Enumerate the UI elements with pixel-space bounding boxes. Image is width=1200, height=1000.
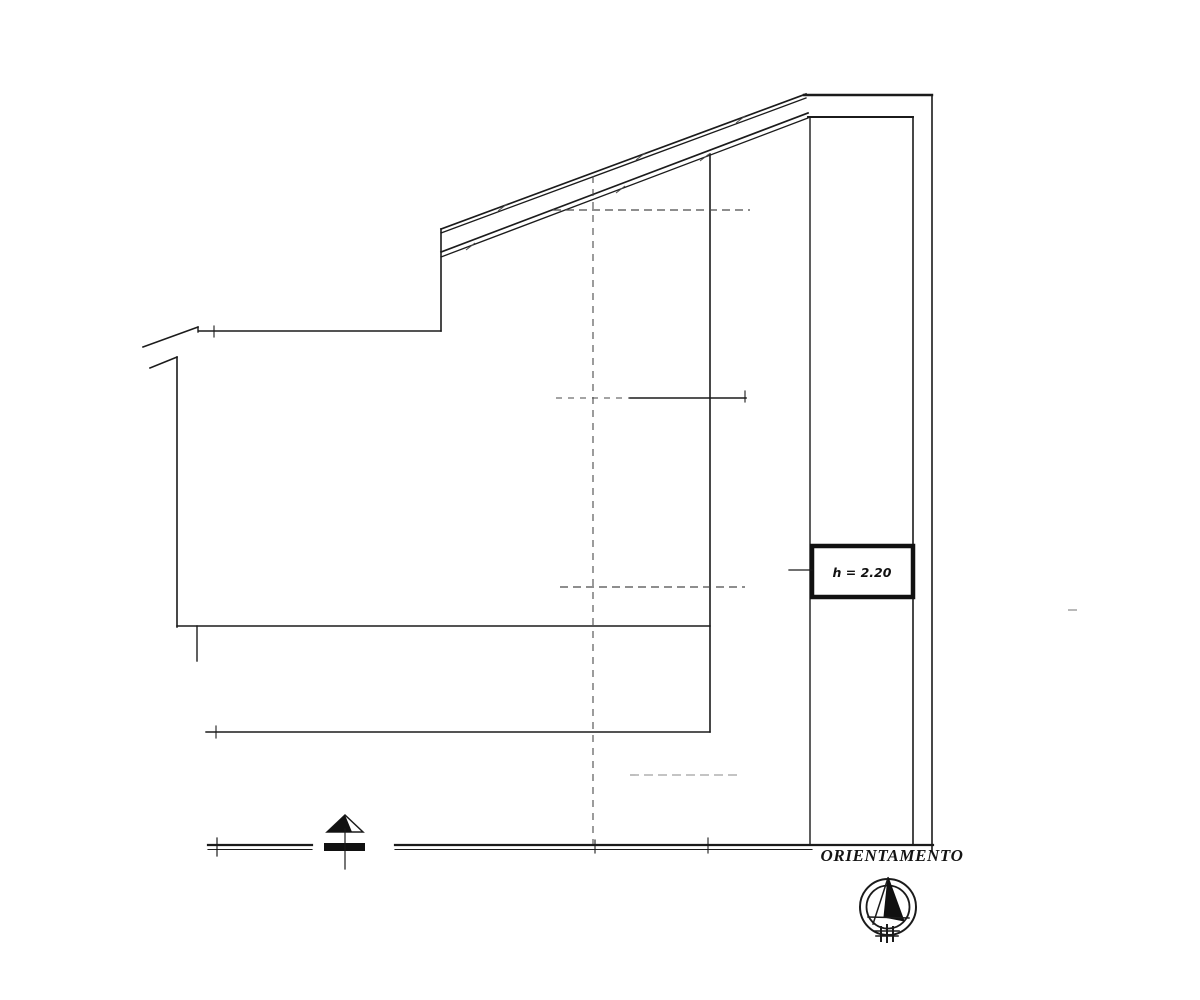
height-label: h = 2.20 (833, 565, 892, 580)
plan-drawing: h = 2.20 (0, 0, 1200, 1000)
roof-fascia-inner (441, 118, 808, 257)
roof-tick-mark (616, 186, 625, 193)
orientation-label: ORIENTAMENTO (820, 846, 964, 866)
scanned-plan-page: h = 2.20 ORIENTAMENTO (0, 0, 1200, 1000)
lower-eave-slope (150, 357, 177, 368)
compass-crossbar (868, 917, 909, 918)
roof-fascia-outer (441, 113, 808, 252)
roof-tick-mark (700, 154, 709, 161)
compass-icon (860, 877, 916, 942)
roof-outline (441, 94, 932, 257)
compass-needle (884, 877, 904, 921)
height-label-box: h = 2.20 (789, 546, 913, 597)
right-column-walls (810, 95, 932, 850)
roof-top-edge-outer (441, 94, 806, 229)
building-body-outline (143, 154, 710, 738)
chimney-arrow-icon (324, 815, 365, 869)
construction-lines (553, 176, 1077, 849)
roof-top-edge-inner (441, 98, 806, 233)
upper-eave-slope (143, 327, 198, 347)
